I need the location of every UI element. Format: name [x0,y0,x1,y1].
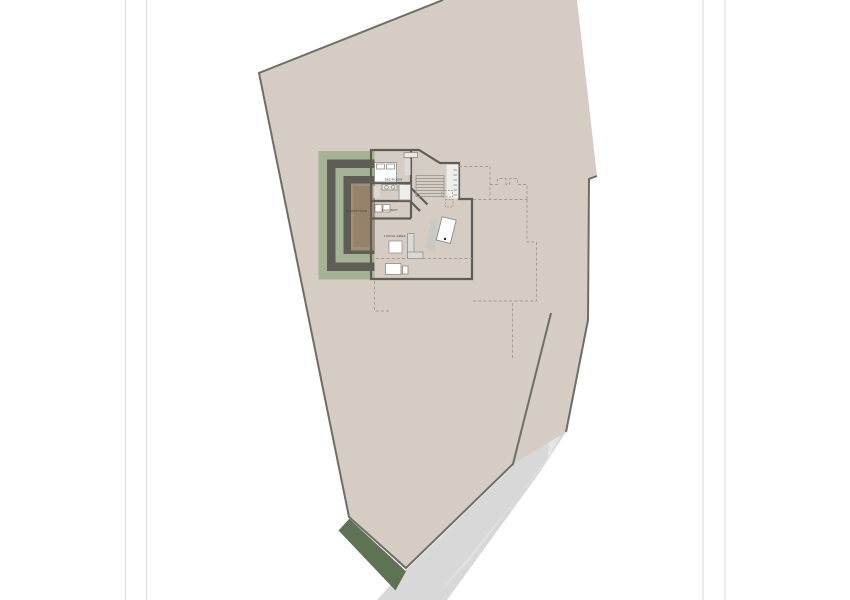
site-boundary-area [259,0,597,568]
bedroom-label: BEDROOM [385,177,403,181]
living-area-label: LIVING AREA [384,234,407,238]
bath-vanity [374,186,381,198]
table-centerpiece-dot [444,238,446,240]
closet [405,159,411,175]
wardrobe [404,153,418,158]
armchair [389,241,402,253]
courtyard-deck [354,186,372,247]
drawing-sheet: BEDROOM COURTYARD LAUNDRY LIVING AREA [0,0,850,600]
side-table [403,266,409,274]
shower [399,185,411,201]
courtyard-label: COURTYARD [346,209,368,213]
site-plan-canvas: BEDROOM COURTYARD LAUNDRY LIVING AREA [0,0,850,600]
bath-counter [382,185,397,191]
laundry-label: LAUNDRY [382,208,398,212]
coffee-table [386,264,402,275]
